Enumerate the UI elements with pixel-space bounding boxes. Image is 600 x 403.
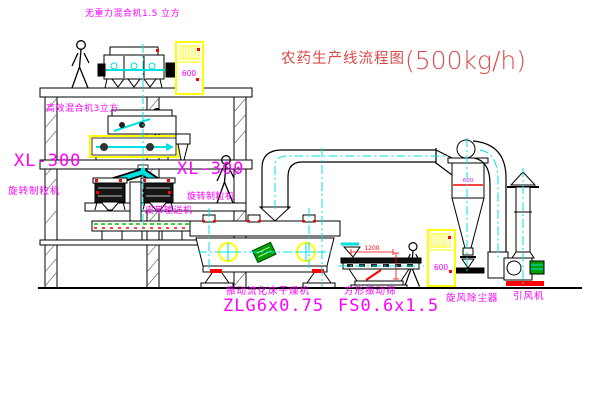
label-gravity-mixer: 无重力混合机1.5 立方 [85, 10, 180, 19]
label-belt-conveyor: 皮带输送机 [145, 207, 193, 216]
title-capacity: (500kg/h) [405, 46, 526, 75]
high-efficiency-mixer [90, 110, 190, 160]
cyclone-badge: 600 [463, 178, 474, 184]
person-icon [72, 41, 89, 88]
label-sieve-model: FS0.6x1.5 [338, 298, 439, 315]
exhaust-duct [262, 148, 452, 209]
page-title: 农药生产线流程图(500kg/h) [281, 46, 526, 75]
label-high-mixer: 高效混合机3立方 [46, 105, 119, 114]
label-dryer-model: ZLG6x0.75 [223, 298, 324, 315]
control-cabinet: 600 [176, 42, 203, 94]
label-granulator-model: XL-300 [14, 153, 81, 170]
label-fan-name: 引风机 [513, 292, 545, 302]
fluid-bed-dryer [190, 207, 340, 288]
label-granulator-model-2: XL-300 [177, 161, 244, 178]
cabinet-badge: 600 [434, 263, 449, 272]
gravity-mixer [98, 47, 181, 88]
control-cabinet-2: 600 [428, 230, 455, 286]
induced-draft-fan [504, 258, 544, 286]
title-chinese: 农药生产线流程图 [281, 51, 405, 67]
sieve-dimension: 1200 [364, 245, 379, 252]
flow-diagram-canvas: 600 [0, 0, 600, 403]
cabinet-badge: 600 [182, 69, 197, 78]
granulator-left [93, 178, 141, 221]
label-granulator-name-2: 旋转制粒机 [187, 193, 235, 202]
label-granulator-name: 旋转制粒机 [8, 187, 61, 197]
label-cyclone-name: 旋风除尘器 [446, 294, 499, 304]
belt-conveyor [92, 221, 196, 240]
discharge-chute [130, 182, 141, 221]
